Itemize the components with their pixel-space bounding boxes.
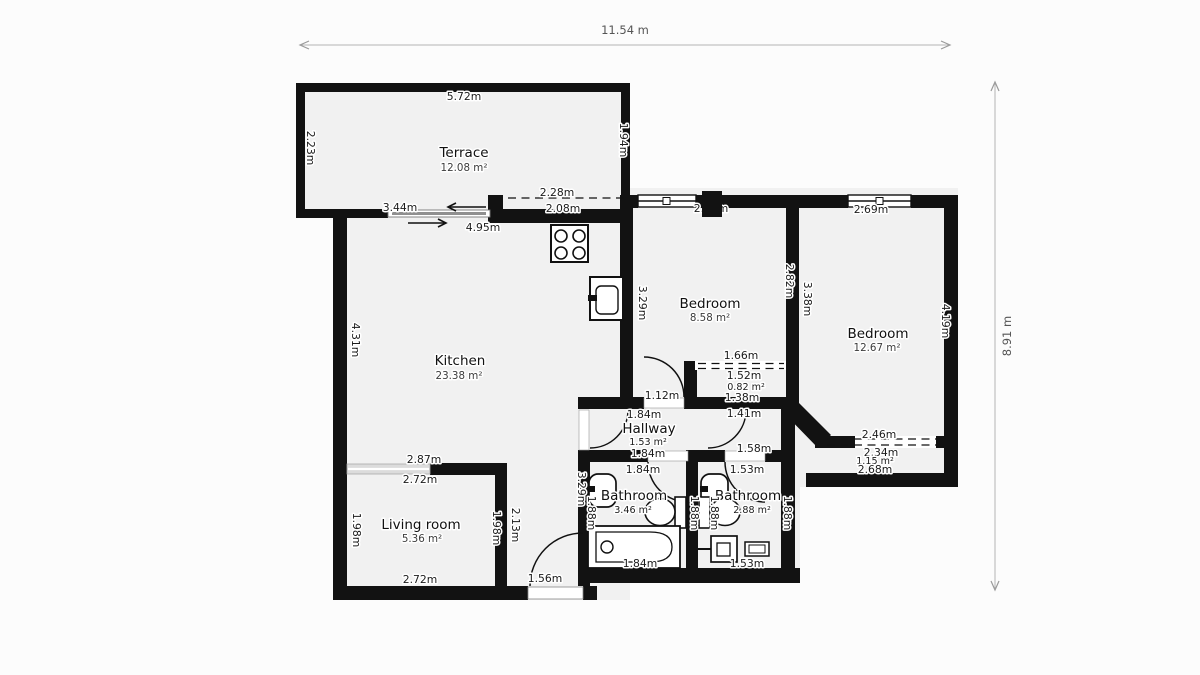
area-label-living-room: 5.36 m² <box>402 533 442 545</box>
small-sink-inner <box>749 545 765 553</box>
wall <box>333 209 347 600</box>
dim-label: 1.84m <box>627 408 662 421</box>
sink-tap <box>588 295 597 301</box>
dim-label: 2.13m <box>509 508 522 543</box>
dim-label: 1.66m <box>724 349 759 362</box>
hallway-threshold <box>579 410 589 450</box>
dim-label: 4.95m <box>466 221 501 234</box>
bedroom1-window <box>638 195 696 207</box>
room-label-bathroom2: Bathroom <box>715 488 781 504</box>
dim-label: 3.44m <box>383 201 418 214</box>
area-label-kitchen: 23.38 m² <box>436 370 483 382</box>
dim-label: 1.53m <box>730 463 765 476</box>
dim-label: 2.23m <box>304 131 317 166</box>
dim-label: 5.72m <box>447 90 482 103</box>
overall-width-label: 11.54 m <box>601 23 649 37</box>
room-label-bathroom1: Bathroom <box>601 488 667 504</box>
wall <box>296 83 305 218</box>
wall <box>786 195 799 405</box>
dim-label: 2.72m <box>403 573 438 586</box>
dim-label: 2.68m <box>858 463 893 476</box>
dim-label: 1.88m <box>708 496 721 531</box>
dim-label: 4.31m <box>349 323 362 358</box>
dim-label: 1.38m <box>725 391 760 404</box>
dim-label: 1.98m <box>350 513 363 548</box>
toilet-tank <box>675 497 686 528</box>
dim-label: 3.38m <box>801 282 814 317</box>
area-label-terrace: 12.08 m² <box>441 162 488 174</box>
bathroom2-sink-icon <box>745 542 769 556</box>
dim-label: 3.29m <box>575 472 588 507</box>
floor-plan-page: 11.54 m 8.91 m <box>0 0 1200 675</box>
dim-label: 1.84m <box>623 557 658 570</box>
dim-label: 1.56m <box>528 572 563 585</box>
dim-label: 4.19m <box>939 304 952 339</box>
dim-label: 1.58m <box>737 442 772 455</box>
overall-height-label: 8.91 m <box>1000 316 1014 356</box>
room-label-hallway: Hallway <box>622 421 675 437</box>
basin-tap <box>700 486 708 492</box>
room-label-living-room: Living room <box>381 517 460 533</box>
area-label-bathroom1: 3.46 m² <box>614 505 652 516</box>
room-label-bedroom1: Bedroom <box>679 296 740 312</box>
dim-label: 1.41m <box>727 407 762 420</box>
dim-label: 3.29m <box>636 286 649 321</box>
dim-label: 1.88m <box>781 496 794 531</box>
kitchen-sink-icon <box>588 277 623 320</box>
dim-label: 1.53m <box>730 557 765 570</box>
dim-label: 2.08m <box>546 202 581 215</box>
room-label-bedroom2: Bedroom <box>847 326 908 342</box>
washer-drum <box>717 543 730 556</box>
area-label-bathroom2: 2.88 m² <box>733 505 771 516</box>
chimney-column <box>702 191 722 217</box>
wall <box>583 586 597 600</box>
wall <box>718 195 848 208</box>
room-label-kitchen: Kitchen <box>435 353 486 369</box>
dim-label: 2.46m <box>862 428 897 441</box>
wall <box>333 586 528 600</box>
dimension-top: 11.54 m <box>300 23 950 49</box>
area-label-bedroom2: 12.67 m² <box>854 342 901 354</box>
dim-label: 2.69m <box>854 203 889 216</box>
dim-label: 1.94m <box>617 123 630 158</box>
dim-label: 1.12m <box>645 389 680 402</box>
dim-label: 1.84m <box>631 447 666 460</box>
wall <box>936 436 958 448</box>
room-label-terrace: Terrace <box>438 145 488 161</box>
floor-plan: 11.54 m 8.91 m <box>0 0 1200 675</box>
dim-label: 1.98m <box>490 511 503 546</box>
dim-label: 1.88m <box>688 496 701 531</box>
dim-label: 2.87m <box>407 453 442 466</box>
dim-label: 1.84m <box>626 463 661 476</box>
dim-label: 2.82m <box>783 264 796 299</box>
sink-basin <box>596 286 618 314</box>
entrance-threshold <box>528 587 583 599</box>
wall <box>815 436 855 448</box>
stove-icon <box>551 225 588 262</box>
window-mullion <box>663 198 670 205</box>
dim-label: 2.28m <box>540 186 575 199</box>
dim-label: 1.52m <box>727 369 762 382</box>
dimension-right: 8.91 m <box>991 82 1014 590</box>
area-label-bedroom1: 8.58 m² <box>690 312 730 324</box>
dim-label: 2.72m <box>403 473 438 486</box>
wall <box>781 398 795 583</box>
